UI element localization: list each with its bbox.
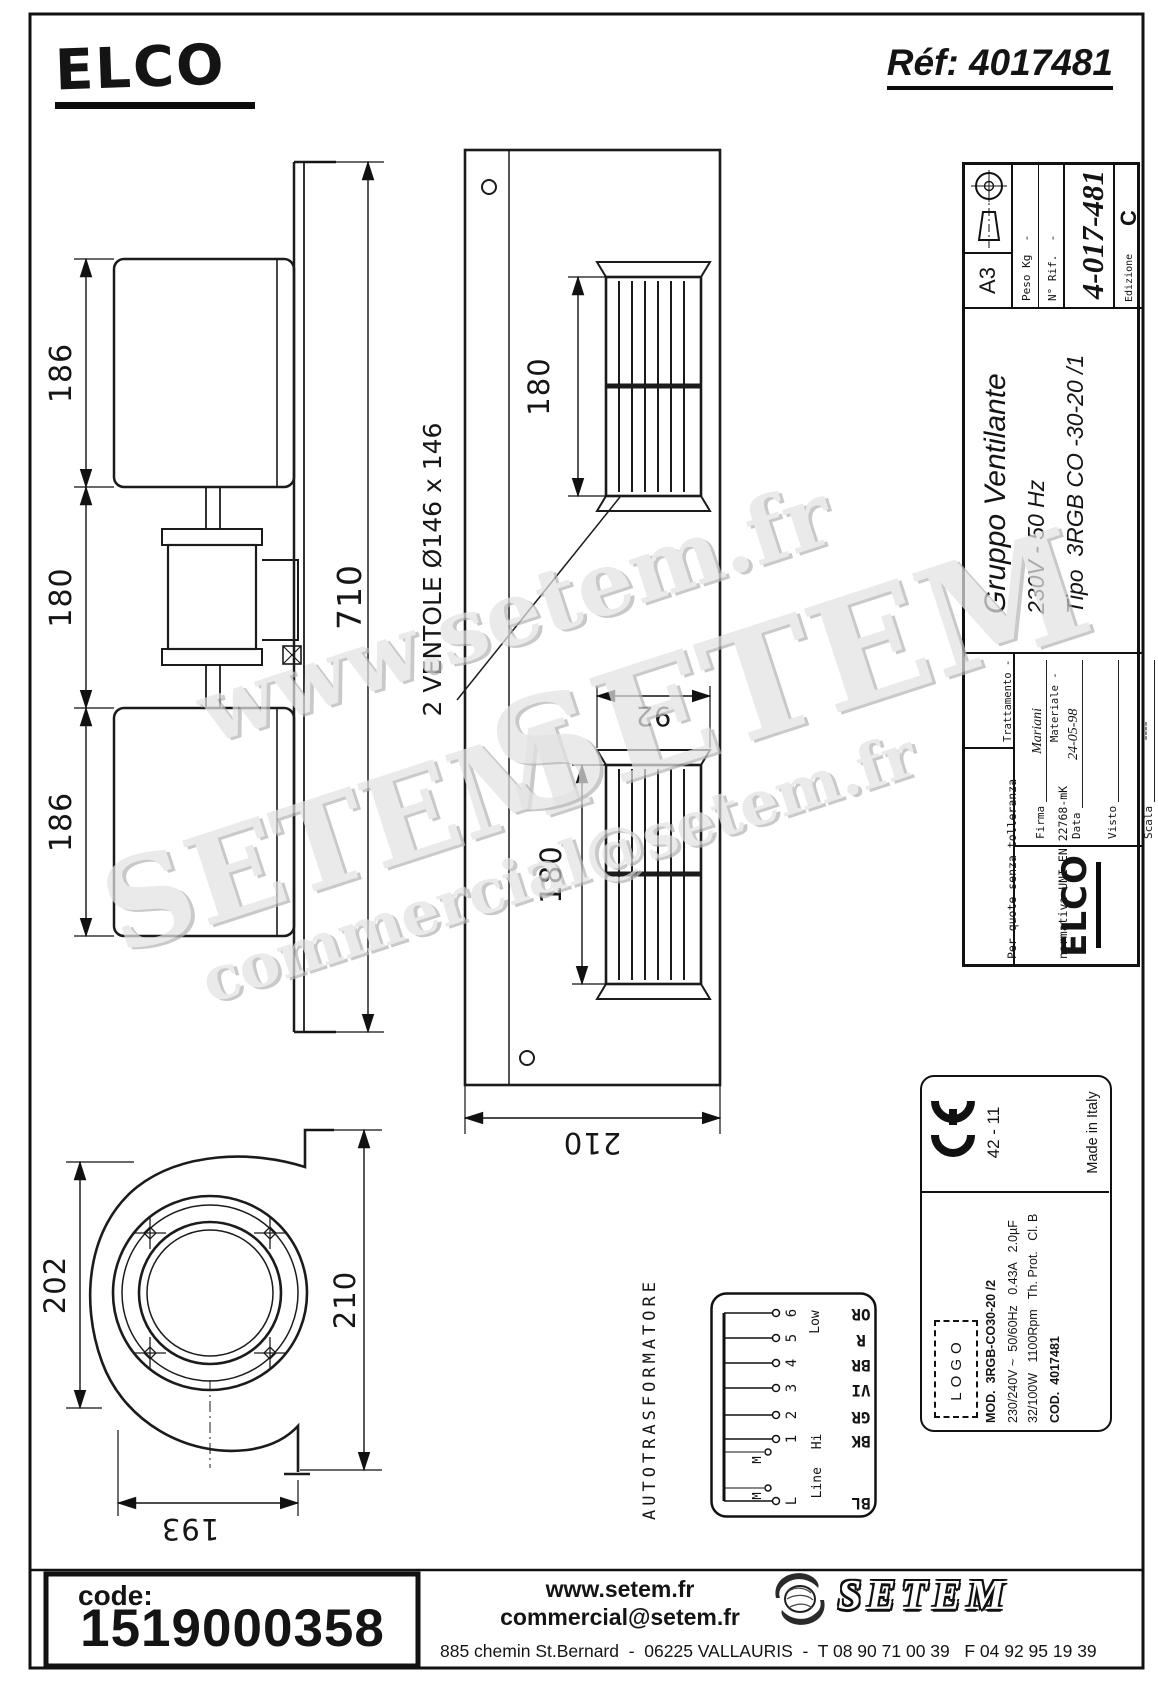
low-label: Low <box>808 1302 823 1342</box>
drawing-title-line2: 230V - 50 Hz <box>1023 309 1050 614</box>
signature-block: Firma Mariani Data 24-05-98 Visto Scala … <box>1015 652 1143 845</box>
firma-value: Mariani <box>1030 660 1047 802</box>
firma-row: Firma Mariani <box>1015 654 1051 845</box>
data-label: Data <box>1070 813 1083 840</box>
visto-label: Visto <box>1106 806 1119 839</box>
motor-tap-label-1: M <box>750 1488 764 1504</box>
data-value: 24-05-98 <box>1066 660 1083 809</box>
plate-power: 32/100W 1100Rpm Th. Prot. Cl. B <box>1026 1191 1040 1423</box>
terminal-3: 3 <box>784 1378 800 1398</box>
drawing-title: Gruppo Ventilante 230V - 50 Hz Tipo 3RGB… <box>965 307 1143 652</box>
scala-value: ---- <box>1138 660 1155 802</box>
firma-label: Firma <box>1034 806 1047 839</box>
plate-electrical: 230/240V ~ 50/60Hz 0.43A 2.0µF <box>1006 1191 1020 1423</box>
rating-plate: LOGO MOD. 3RGB-CO30-20 /2 230/240V ~ 50/… <box>920 1075 1112 1432</box>
terminal-5: 5 <box>784 1328 800 1348</box>
ce-mark-icon <box>930 1097 976 1169</box>
data-row: Data 24-05-98 <box>1051 654 1087 845</box>
motor-tap-label-2: M <box>750 1452 764 1468</box>
reference-number: Réf: 4017481 <box>887 42 1113 90</box>
edition-label: Edizione <box>1124 244 1135 302</box>
title-block-logo-underline <box>1096 863 1101 949</box>
scala-label: Scala <box>1142 806 1155 839</box>
edition-value: C <box>1116 210 1142 226</box>
plate-code: COD. 4017481 <box>1048 1191 1062 1423</box>
terminal-2: 2 <box>784 1405 800 1425</box>
projection-symbol-icon <box>965 162 1013 252</box>
code-value: 1519000358 <box>60 1598 405 1659</box>
drawing-sheet: ELCO Réf: 4017481 186 180 186 710 2 VENT… <box>0 0 1158 1690</box>
plate-right-section: 42 - 11 Made in Italy <box>922 1074 1109 1193</box>
setem-logo-text: SETEM <box>838 1572 1010 1620</box>
plate-made-in: Made in Italy <box>1085 1074 1101 1191</box>
setem-logo <box>768 1568 832 1630</box>
terminal-6: 6 <box>784 1303 800 1323</box>
elco-logo-underline <box>55 102 255 109</box>
edition-cell: Edizione C <box>1115 162 1143 307</box>
visto-row: Visto <box>1087 654 1123 845</box>
plate-model: MOD. 3RGB-CO30-20 /2 <box>984 1191 998 1423</box>
drawing-number: 4-017-481 <box>1065 162 1115 307</box>
rating-plate-logo-box: LOGO <box>934 1320 978 1418</box>
plate-batch: 42 - 11 <box>984 1074 1004 1191</box>
visto-value <box>1102 660 1119 802</box>
weight-field: Peso Kg - <box>1013 162 1039 307</box>
drawing-title-line3: Tipo 3RGB CO -30-20 /1 <box>1062 309 1089 614</box>
terminal-1: 1 <box>784 1429 800 1449</box>
terminal-L: L <box>784 1491 800 1511</box>
setem-swirl-icon <box>768 1568 832 1630</box>
treatment-material: Trattamento - Materiale - <box>965 652 1015 747</box>
ref-field: N° Rif. - <box>1039 162 1065 307</box>
tolerance-note: Per quote senza tolleranza normativa UNI… <box>965 747 1015 964</box>
terminal-4: 4 <box>784 1353 800 1373</box>
projection-symbol <box>965 162 1013 252</box>
elco-logo-text: ELCO <box>54 37 256 100</box>
line-hi-label: Line Hi <box>810 1422 825 1510</box>
title-block: Per quote senza tolleranza normativa UNI… <box>962 162 1140 967</box>
autotransformer-diagram: L 1 2 3 4 5 6 M M Line Hi Low <box>710 1292 877 1518</box>
title-block-logo-text: ELCO <box>1058 854 1092 957</box>
title-block-logo: ELCO <box>1015 845 1143 964</box>
sheet-format: A3 <box>965 252 1013 307</box>
scala-row: Scala ---- <box>1123 654 1158 845</box>
elco-logo: ELCO <box>55 40 255 109</box>
drawing-title-line1: Gruppo Ventilante <box>979 309 1013 614</box>
treatment-field: Trattamento - <box>1001 657 1017 742</box>
